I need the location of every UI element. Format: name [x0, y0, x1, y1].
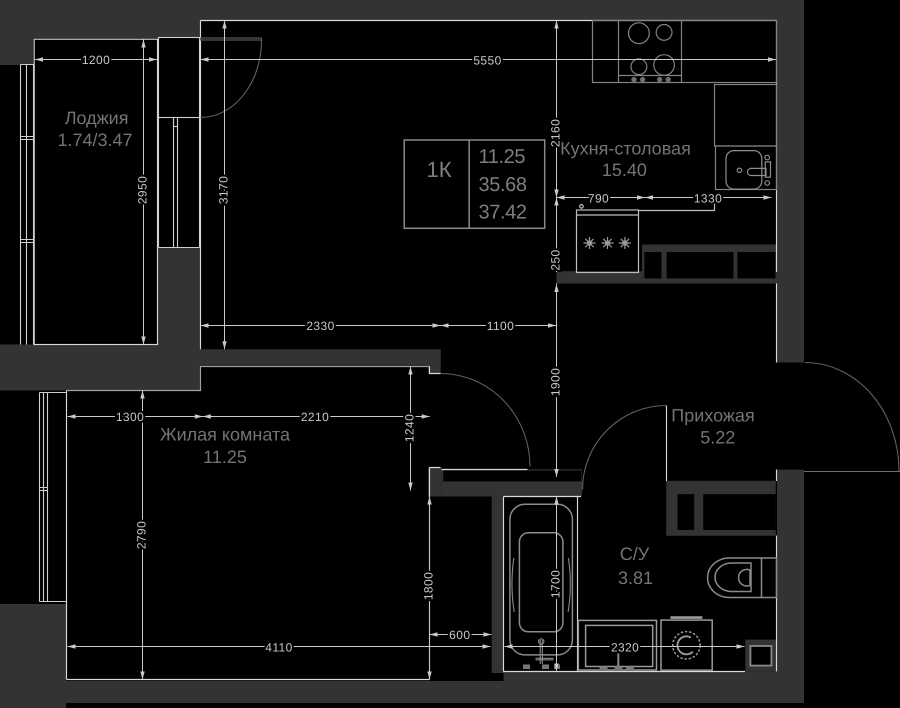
svg-text:С/У: С/У [620, 544, 650, 564]
svg-text:15.40: 15.40 [602, 160, 647, 180]
svg-text:Прихожая: Прихожая [671, 406, 754, 426]
svg-text:11.25: 11.25 [203, 447, 247, 467]
svg-text:Лоджия: Лоджия [65, 108, 129, 128]
svg-text:37.42: 37.42 [479, 201, 527, 223]
svg-text:2210: 2210 [301, 410, 329, 424]
svg-text:2950: 2950 [136, 176, 150, 204]
svg-text:1330: 1330 [694, 192, 722, 206]
svg-text:Жилая комната: Жилая комната [160, 425, 291, 445]
svg-text:1240: 1240 [403, 414, 417, 442]
svg-text:1300: 1300 [116, 410, 144, 424]
svg-text:5550: 5550 [473, 53, 501, 67]
svg-text:1К: 1К [426, 157, 451, 182]
svg-text:1800: 1800 [422, 572, 436, 600]
svg-text:Кухня-столовая: Кухня-столовая [560, 139, 691, 159]
svg-text:5.22: 5.22 [700, 427, 735, 447]
svg-text:4110: 4110 [265, 640, 292, 654]
svg-text:2790: 2790 [135, 521, 149, 549]
svg-text:1900: 1900 [549, 368, 563, 396]
svg-text:250: 250 [549, 249, 563, 270]
svg-text:1100: 1100 [487, 319, 514, 333]
svg-text:3170: 3170 [217, 176, 231, 204]
svg-text:11.25: 11.25 [479, 146, 526, 168]
svg-text:2320: 2320 [611, 641, 639, 655]
svg-text:3.81: 3.81 [618, 568, 653, 588]
svg-text:35.68: 35.68 [479, 174, 527, 196]
svg-text:1.74/3.47: 1.74/3.47 [57, 130, 132, 150]
svg-text:1200: 1200 [82, 53, 110, 67]
svg-text:2330: 2330 [306, 319, 334, 333]
svg-text:600: 600 [449, 628, 470, 642]
svg-text:1700: 1700 [549, 570, 563, 598]
svg-text:790: 790 [588, 192, 609, 206]
